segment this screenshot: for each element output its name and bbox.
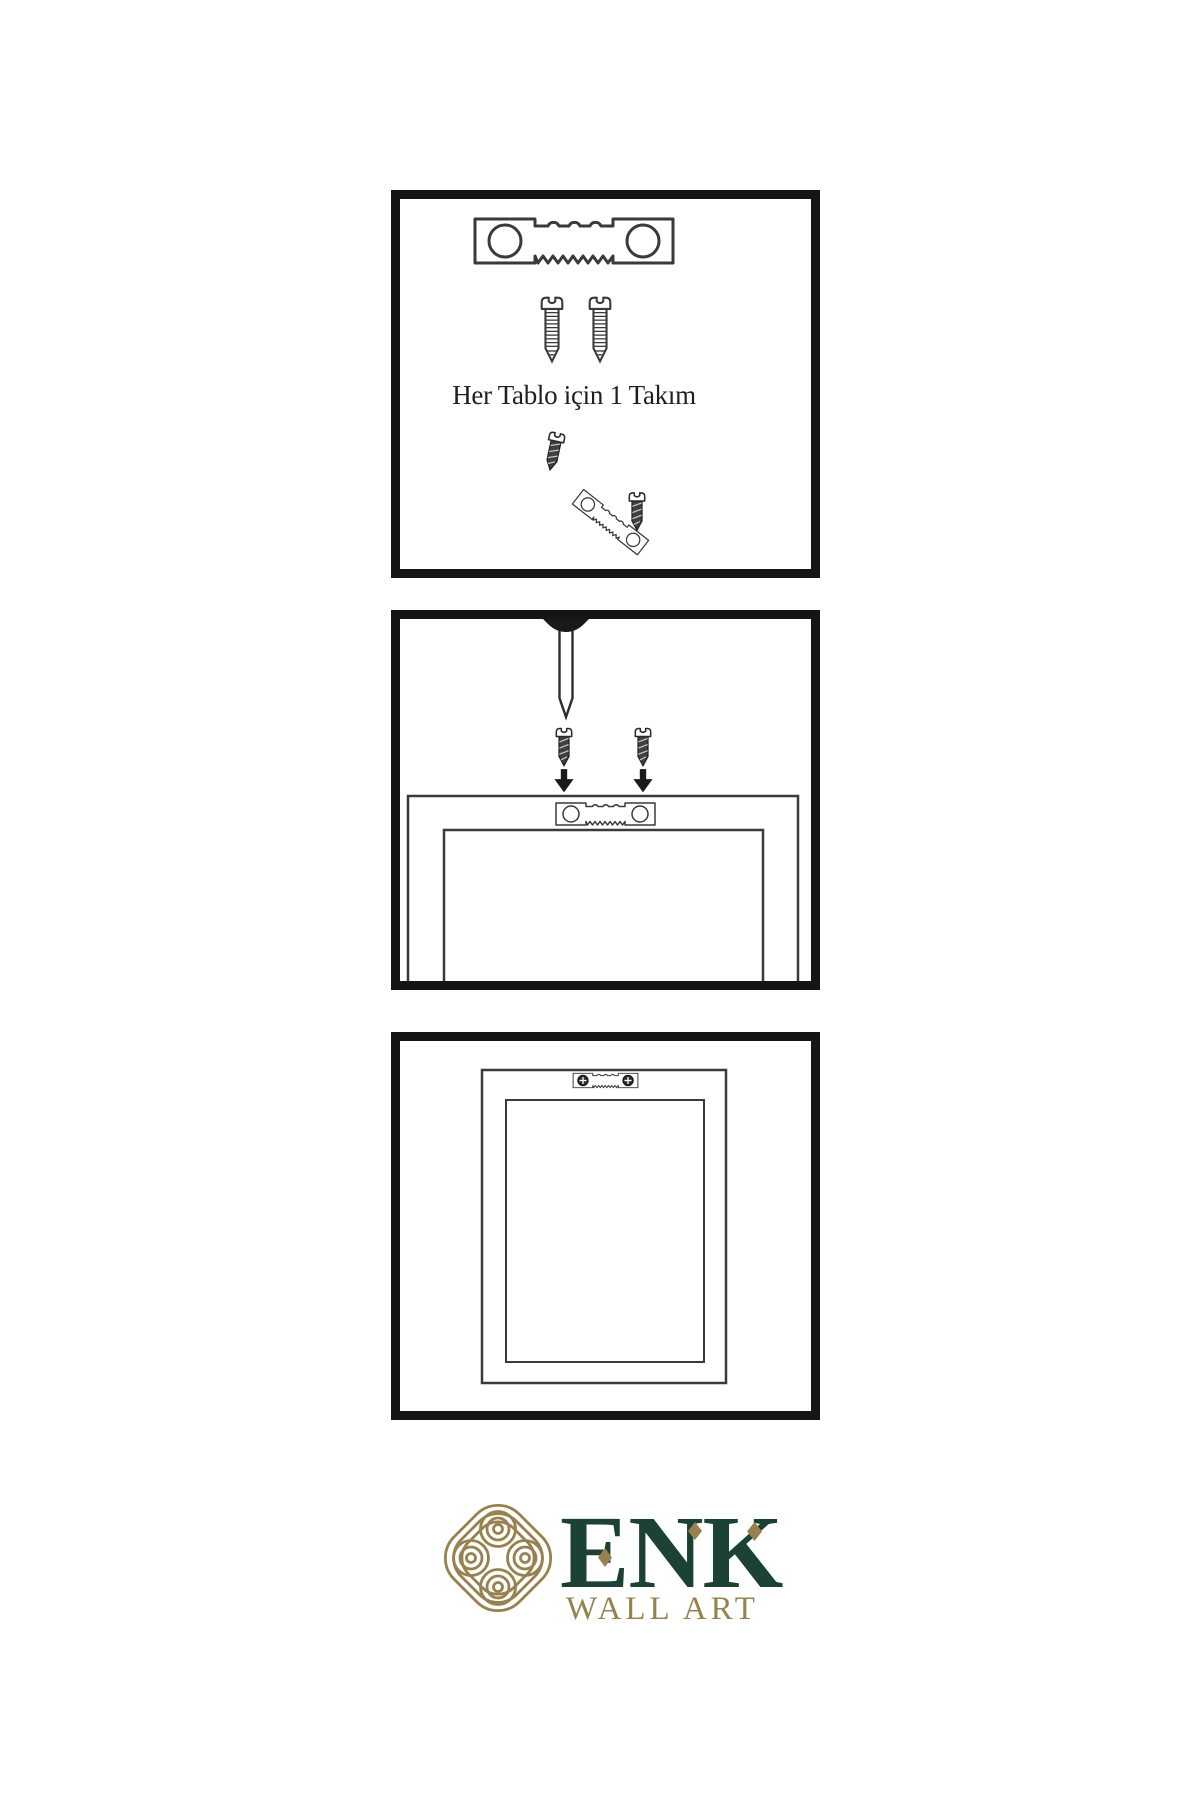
small-screw-icon [542,432,565,472]
panel-mounting-step [391,610,820,990]
screw-icon [542,298,563,362]
sawtooth-hanger-icon [556,803,655,825]
wall-nail-icon [543,619,589,717]
panel-hanging-step [391,1032,820,1420]
down-arrow-icon [633,769,652,792]
frame-front-inner-outline [506,1100,704,1362]
knot-icon [435,1492,561,1624]
screw-head-icon [578,1076,588,1086]
brand-name: ENK [560,1501,782,1605]
sawtooth-hanger-icon [475,219,673,263]
dark-screw-icon [556,728,571,765]
screw-icon [590,298,611,362]
dark-screw-icon [635,728,650,765]
screw-head-icon [623,1076,633,1086]
mounting-illustration [400,619,811,981]
instruction-sheet: Her Tablo için 1 Takım [0,0,1200,1800]
kit-caption: Her Tablo için 1 Takım [400,380,748,411]
brand-tagline: WALL ART [566,1593,759,1626]
frame-back-inner-outline [444,830,763,981]
down-arrow-icon [554,769,573,792]
hanging-illustration [400,1041,811,1411]
panel-hardware-kit: Her Tablo için 1 Takım [391,190,820,578]
small-screw-icon [629,493,644,530]
